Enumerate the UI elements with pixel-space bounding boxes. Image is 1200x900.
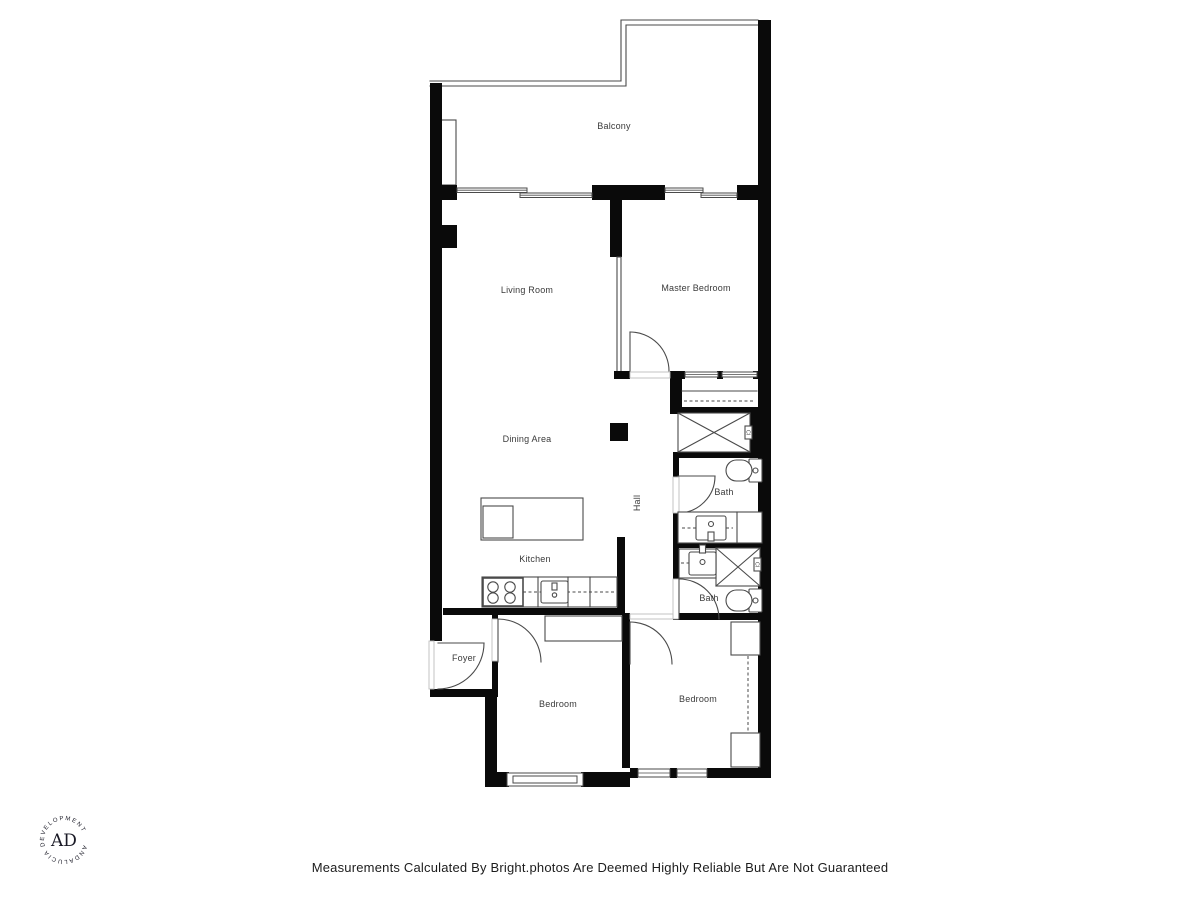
wall-segment [430, 185, 457, 200]
floor-plan: Balcony Living Room Master Bedroom Dinin… [0, 0, 1200, 900]
toilet-icon [726, 459, 762, 482]
wall-segment [673, 613, 762, 620]
railing-outer-line [430, 20, 758, 81]
wall-segment [492, 661, 498, 690]
wall-segment [581, 772, 630, 787]
label-bath-upper: Bath [714, 487, 733, 497]
door-jamb [492, 619, 498, 661]
brand-logo: ANDALUCIA DEVELOPMENT AD [37, 813, 91, 867]
measurement-disclaimer: Measurements Calculated By Bright.photos… [0, 860, 1200, 875]
toilet-icon [726, 589, 762, 612]
label-kitchen: Kitchen [519, 554, 550, 564]
closet-slider-door [685, 372, 718, 377]
wall-segment [492, 615, 498, 619]
vanity-sink-icon [679, 545, 716, 578]
wall-segment [610, 185, 622, 257]
label-living-room: Living Room [501, 285, 553, 295]
railing-inner-line [430, 25, 758, 86]
stove-icon [483, 578, 523, 606]
wall-segment [673, 452, 679, 477]
closet-slider-door [722, 372, 757, 377]
wall-segment [707, 768, 771, 778]
door-jamb [630, 614, 673, 619]
vanity-sink-icon [678, 512, 762, 543]
wall-segment [670, 768, 677, 778]
label-bath-lower: Bath [699, 593, 718, 603]
wall-segment [737, 185, 758, 200]
master-closet-rod [682, 391, 757, 401]
door-arc-bedroom-right [630, 622, 672, 664]
wall-segment [430, 225, 457, 248]
wall-segment [592, 185, 665, 200]
window [638, 769, 670, 777]
door-jamb [673, 579, 679, 619]
partition-wall [617, 257, 621, 372]
wall-segment [614, 371, 630, 379]
window [520, 193, 592, 198]
wall-segment [485, 772, 509, 787]
balcony-planter [441, 120, 456, 185]
wall-segment [673, 452, 762, 458]
door-jamb [429, 641, 434, 689]
label-balcony: Balcony [597, 121, 631, 131]
bedroom-shelf [545, 616, 622, 641]
kitchen-sink-icon [541, 581, 568, 603]
wall-segment [443, 608, 625, 615]
wall-segment [673, 548, 679, 579]
door-jamb [673, 477, 679, 513]
window [677, 769, 707, 777]
window [701, 193, 737, 198]
door-arc-bath-upper [678, 476, 715, 513]
door-jamb [630, 372, 670, 378]
wall-segment [617, 537, 625, 609]
wall-segment [622, 615, 630, 768]
window [457, 188, 527, 193]
logo-monogram: AD [50, 831, 77, 851]
wall-segment [630, 768, 638, 778]
wall-segment [430, 83, 442, 641]
door-arc-master-bedroom [630, 332, 669, 371]
window [665, 188, 703, 193]
bedroom-wardrobe [731, 622, 760, 767]
label-bedroom-left: Bedroom [539, 699, 577, 709]
wardrobe-x-icon [678, 413, 750, 452]
door-arc-bedroom-left [498, 619, 541, 662]
label-master-bedroom: Master Bedroom [661, 283, 730, 293]
door-arc-entry-foyer [438, 643, 484, 689]
wardrobe-x-icon [716, 548, 760, 586]
label-foyer: Foyer [452, 653, 476, 663]
label-closet-upper: Cl [745, 430, 751, 435]
walls [430, 20, 771, 787]
label-dining-area: Dining Area [503, 434, 552, 444]
label-hall: Hall [632, 495, 642, 511]
column-pillar [610, 423, 628, 441]
label-closet-lower: Cl [754, 562, 760, 567]
label-bedroom-right: Bedroom [679, 694, 717, 704]
page: Balcony Living Room Master Bedroom Dinin… [0, 0, 1200, 900]
balcony-railing [430, 20, 758, 185]
window [507, 773, 583, 786]
wall-segment [758, 20, 771, 378]
kitchen-island [481, 498, 583, 540]
